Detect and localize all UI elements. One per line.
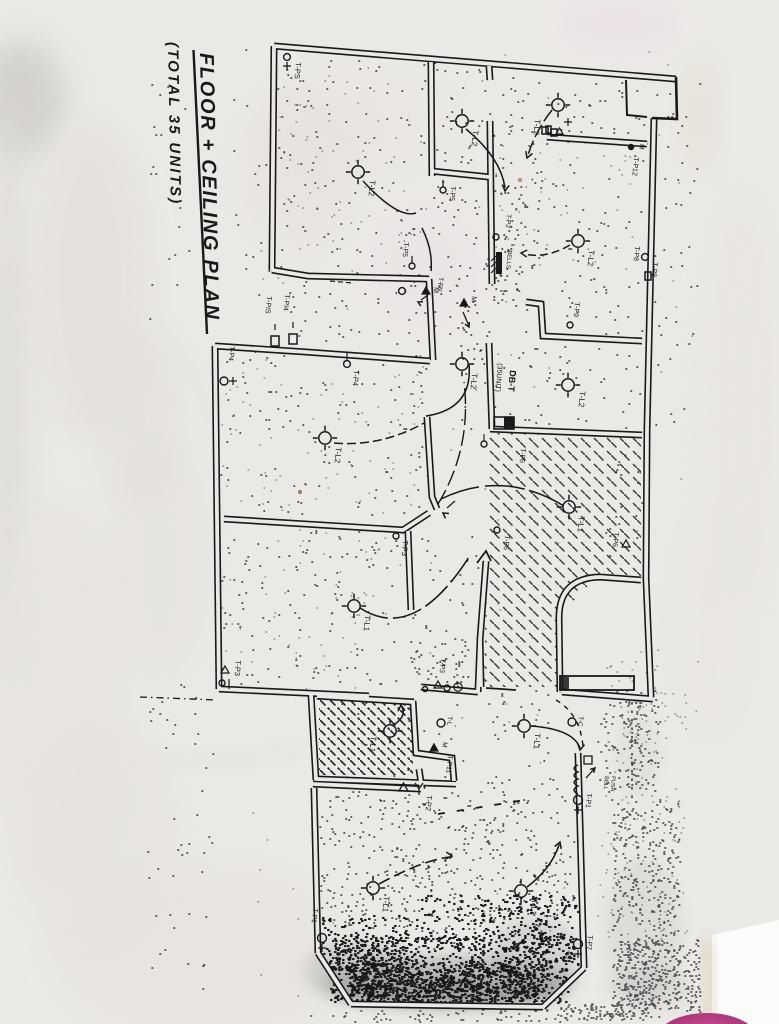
svg-text:T-P5: T-P5 [401, 242, 409, 257]
svg-text:DB-T: DB-T [506, 370, 518, 393]
svg-text:T-P8: T-P8 [632, 246, 640, 261]
svg-text:T-P4: T-P4 [351, 370, 361, 387]
svg-text:T-L2: T-L2 [577, 391, 587, 408]
svg-text:T-P9: T-P9 [572, 302, 580, 317]
svg-text:T-PS: T-PS [293, 62, 303, 79]
svg-text:T-L1: T-L1 [529, 899, 539, 916]
svg-text:T-P6: T-P6 [502, 535, 510, 550]
svg-text:T-L1: T-L1 [362, 615, 372, 632]
svg-text:(TOTAL 35 UNITS): (TOTAL 35 UNITS) [164, 42, 184, 206]
svg-text:T-P2: T-P2 [424, 795, 434, 812]
svg-text:T-L2: T-L2 [469, 373, 479, 390]
svg-text:T-P3: T-P3 [400, 540, 410, 557]
svg-text:M: M [638, 144, 645, 150]
svg-text:T-L: T-L [445, 716, 453, 726]
svg-text:T-P7: T-P7 [585, 935, 593, 950]
svg-text:M: M [469, 296, 476, 303]
svg-text:T-P2: T-P2 [504, 214, 512, 229]
svg-text:T-P6: T-P6 [611, 532, 619, 547]
svg-text:T-PI4: T-PI4 [282, 294, 290, 311]
svg-text:T-FN: T-FN [436, 277, 444, 292]
svg-text:T-L2: T-L2 [532, 119, 542, 136]
svg-text:T-P3: T-P3 [438, 658, 446, 673]
svg-text:T-P6: T-P6 [518, 448, 526, 463]
svg-text:T-L2: T-L2 [367, 180, 377, 197]
svg-text:T-L2: T-L2 [470, 130, 480, 147]
svg-text:T-P8: T-P8 [650, 262, 658, 277]
svg-text:BELL: BELL [602, 776, 609, 790]
svg-text:T-L1: T-L1 [576, 516, 586, 533]
svg-text:T-L1: T-L1 [368, 736, 378, 753]
svg-text:T-P4: T-P4 [227, 346, 235, 361]
svg-text:T-P1: T-P1 [584, 793, 592, 808]
svg-text:M: M [441, 742, 448, 748]
svg-text:+O: +O [564, 950, 572, 959]
svg-text:T-L1: T-L1 [532, 733, 542, 750]
svg-text:T-P3: T-P3 [233, 660, 243, 677]
svg-text:T-P5: T-P5 [448, 186, 456, 201]
svg-text:T-L2: T-L2 [333, 447, 343, 464]
svg-text:T-C: T-C [576, 716, 584, 727]
svg-text:T-L1: T-L1 [381, 896, 391, 913]
svg-text:T-P1: T-P1 [310, 908, 318, 923]
svg-text:T-L2: T-L2 [586, 250, 596, 267]
